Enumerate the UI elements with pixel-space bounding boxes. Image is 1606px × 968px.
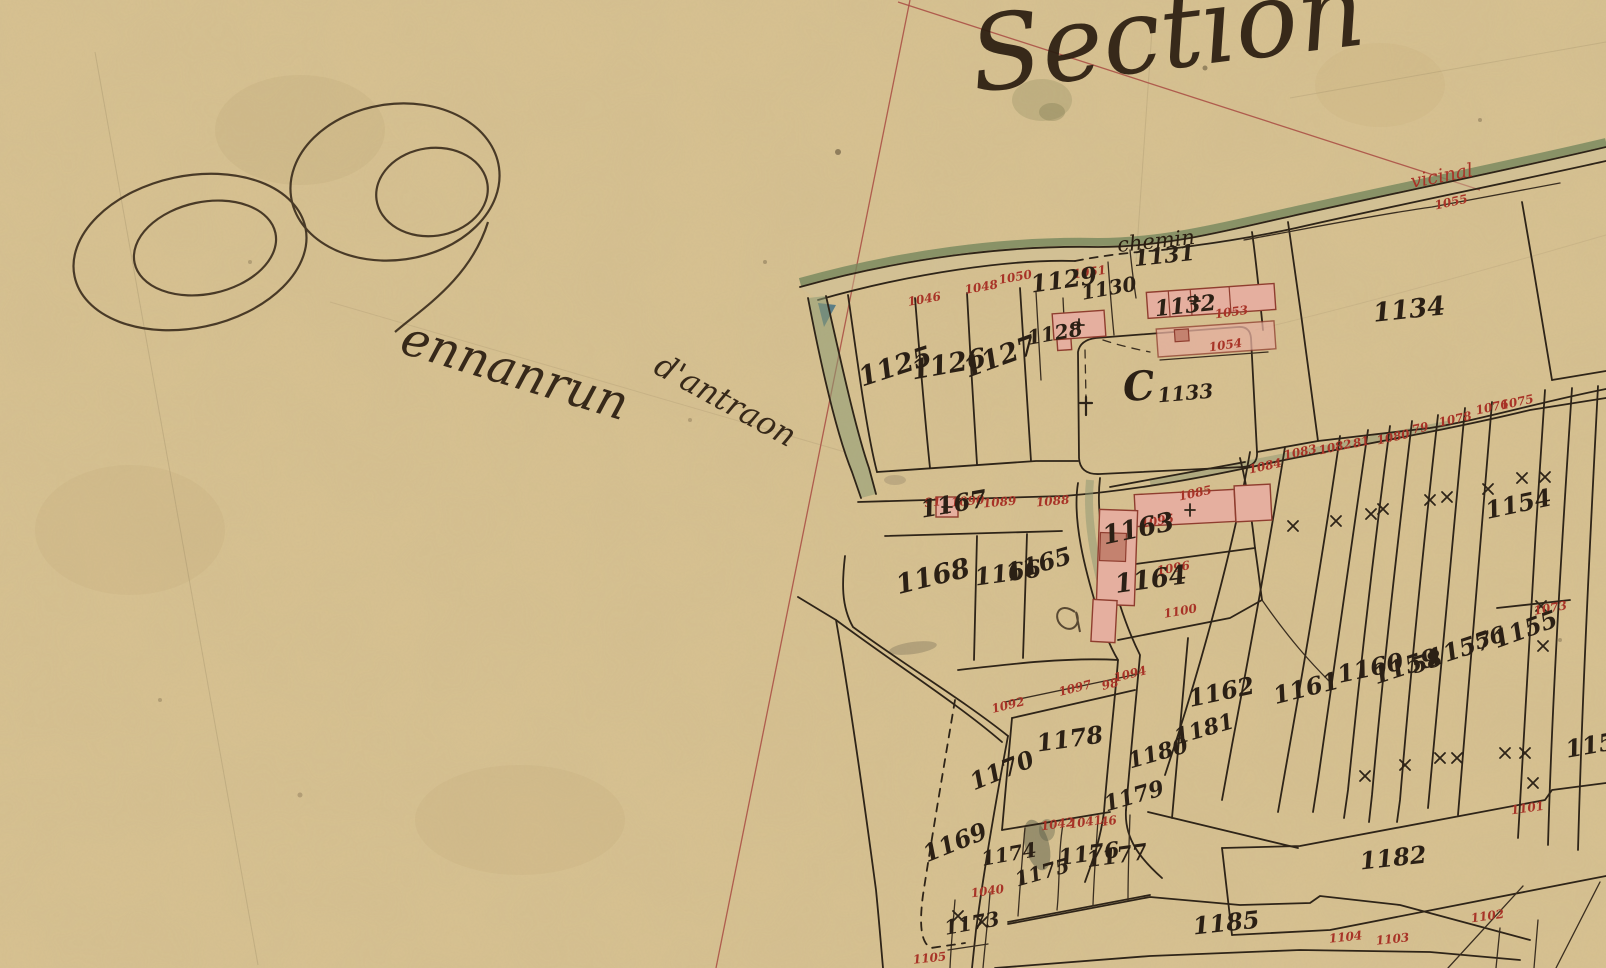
- red-reference-label: 1088: [1035, 493, 1070, 510]
- cadastral-map: 1046104810501051105310541055108079107810…: [0, 0, 1606, 968]
- parcel-number-label: C: [1121, 362, 1157, 412]
- map-drawing: 1046104810501051105310541055108079107810…: [0, 0, 1606, 968]
- parcel-number-label: 1133: [1157, 379, 1215, 408]
